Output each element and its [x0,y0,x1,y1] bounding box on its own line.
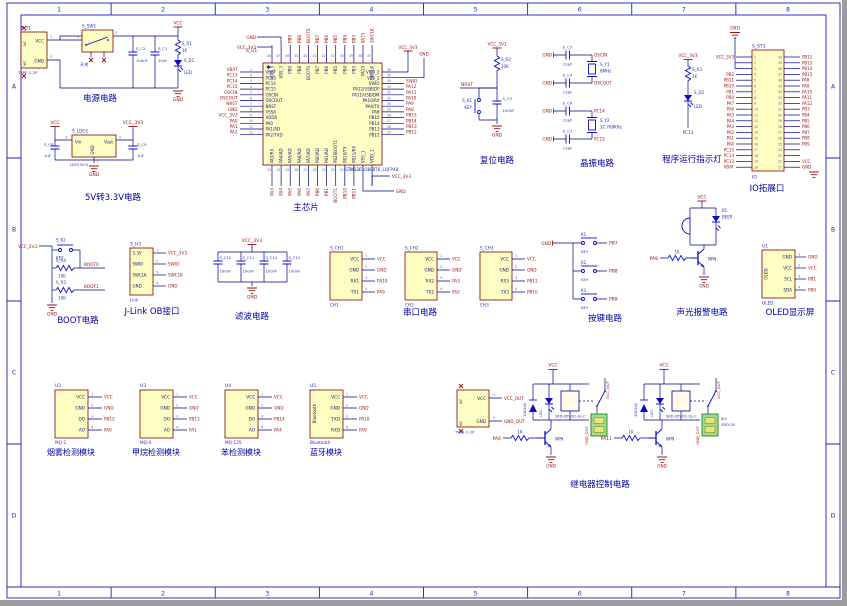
net-label: VCC [189,395,198,400]
pin-name: PB1/AD [324,148,329,163]
net-label: PB11 [724,78,735,83]
pin-name: NC [459,420,463,426]
pin-number: 40 [778,55,782,59]
pin-number: 34 [387,79,391,83]
net-label: GND [546,464,556,469]
pin-number: 29 [778,119,782,123]
pin-number: 13 [754,125,758,129]
zone-number-bottom: 8 [786,591,790,598]
pin-name: VCC [76,395,85,400]
pin-name: GND [330,406,340,411]
pin-number: 46 [285,54,289,58]
pin-number: 1 [176,393,178,397]
pin-number: 36 [778,79,782,83]
net-label: VCC [697,195,706,201]
net-label: VCC_3V3 [237,45,256,50]
zone-number-top: 6 [578,7,582,14]
pin-number: 1 [365,254,367,258]
net-label: GND [377,268,387,273]
net-label: OSCIN [224,90,237,95]
pin-name: PC15 [266,87,277,92]
net-label: PA4 [727,118,735,123]
designator: S_C5 [503,96,513,101]
pin-name: GND [349,268,359,273]
value: 8MHz [600,69,611,74]
circuit-caption: 电源电路 [83,93,118,104]
pin-number: 3 [515,276,517,280]
pin-number: 33 [387,85,391,89]
pin-name: PB11/RX [351,146,356,163]
net-label: PA10 [802,89,812,94]
label: NPN [708,257,716,262]
pin-name: Vout [104,140,113,145]
net-label: PA15 [361,32,366,43]
circuit-caption: BOOT电路 [57,315,99,326]
part-name: SRD-05VDC-SL-C [666,415,697,419]
designator: S_C4 [563,73,573,78]
net-label: PA3 [727,124,735,129]
pin-number: 34 [778,90,782,94]
net-label: SWIO [168,262,180,267]
net-label: GND_OUT [584,426,589,445]
pin-number: 14 [276,168,280,172]
pin-name: PA3/RX [270,148,275,163]
part-name: SRD-05 [721,422,736,427]
zone-letter-right: D [831,513,836,520]
part-name: MQ-4 [140,440,152,445]
switch-label: 开关 [80,61,88,68]
pin-name: GND [90,145,95,154]
pin-number: 7 [250,102,252,106]
net-label: SWIO [406,78,418,83]
pin-number: 27 [387,119,391,123]
net-label: VCC [548,363,557,369]
circuit-caption: 晶振电路 [580,158,615,169]
net-label: GND [657,464,667,469]
pin-name: PA1/AD [266,127,281,132]
pin-number: 29 [387,108,391,112]
circuit-caption: 5V转3.3V电路 [85,192,142,203]
pin-name: TXD [330,417,340,422]
zone-number-top: 5 [474,7,478,14]
net-label: PA11 [601,436,612,442]
pin-number: 10 [754,108,758,112]
pin-number: 27 [778,131,782,135]
pin-number: 4 [754,73,756,77]
pin-number: 1 [50,35,52,39]
value: 100nF [266,269,278,274]
pin-name: PB3 [351,66,356,74]
net-label: PB10 [342,188,347,199]
value: 12pF [563,62,572,67]
schematic-sheet: 1 1 2 2 3 3 4 4 5 5 6 6 7 7 8 [0,0,847,606]
net-label: PA10 [377,279,388,284]
pin-number: 2 [77,35,79,39]
net-label: VCC_3V3 [488,42,507,47]
part-name: OLED [762,301,774,306]
pin-name: TX1 [350,290,359,295]
zone-letter-left: C [12,370,16,377]
designator: K1 [581,232,587,237]
net-label: PB1 [808,277,816,282]
value: 12pF [563,90,572,95]
zone-number-top: 1 [57,7,61,14]
designator: S_C9 [137,142,147,147]
part-name: Link [130,298,139,303]
pin-name: PB8 [297,66,302,74]
value: 100nF [503,108,515,113]
designator: S_H1 [130,242,141,248]
pin-name: PB12 [369,132,380,137]
net-label: PB11 [527,279,538,284]
pin-number: 21 [340,168,344,172]
module-vertical-label: Bluetooth [312,403,317,423]
value: 1uF [137,153,144,158]
net-label: SWCLK [168,273,183,278]
zone-letter-left: B [12,227,16,234]
pin-name: NC [459,398,463,404]
net-label: GND [419,52,429,57]
designator: U2 [55,383,61,389]
net-label: PC15 [227,84,238,89]
net-label: GND_OUT [504,419,525,424]
net-label: PB13 [802,60,813,65]
net-label: GND [247,295,258,301]
net-label: VCC [377,257,386,262]
net-label: PA3 [452,279,460,284]
net-label: PB9 [802,142,810,147]
net-label: PA0 [727,142,735,147]
pin-name: PA7/AD [306,148,311,163]
part-name: Bluetooth [310,440,331,445]
pin-name: PA6/AD [297,148,302,163]
net-label: GND [542,53,552,58]
pin-name: PB2/BOOT1 [333,140,338,163]
pin-number: 8 [754,96,756,100]
pin-number: 18 [754,154,758,158]
net-label: PB12 [406,130,417,135]
pin-name: VCC [246,395,255,400]
pin-number: 17 [303,168,307,172]
net-label: PA11 [802,95,812,100]
pin-number: 31 [778,108,782,112]
pin-number: 3 [365,276,367,280]
pin-number: 37 [778,73,782,77]
part-name: TYPE-C-2P [454,430,475,435]
circuit-caption: 按键电路 [588,313,623,324]
net-label: VCC [802,159,811,164]
designator: S_R2 [501,57,511,62]
pin-name: PB15 [369,115,380,120]
pin-name: SWIO [369,81,380,86]
net-label: VCC [808,266,817,271]
net-label: PA6 [493,436,502,442]
circuit-caption: 复位电路 [480,155,515,166]
pin-number: 11 [249,125,253,129]
pin-number: 40 [340,54,344,58]
pin-number: 21 [778,166,782,170]
pin-number: 47 [276,54,280,58]
pin-number: 1 [250,68,252,72]
net-label: VCC [50,120,59,126]
relay-coil [561,391,579,411]
zone-number-bottom: 2 [161,591,165,598]
net-label: PB7 [802,130,810,135]
net-label: PB0 [726,95,734,100]
designator: U4 [225,383,231,389]
net-label: PB12 [802,55,813,60]
pin-number: 1 [156,249,158,253]
pin-number: 22 [349,168,353,172]
pin-name: GND [424,268,434,273]
net-label: PA10 [406,96,417,101]
value: 100nF [289,269,301,274]
pin-number: 16 [754,142,758,146]
pin-name: GND [476,419,486,424]
net-label: PA5 [288,188,293,196]
pin-number: 32 [387,91,391,95]
pin-number: 32 [778,102,782,106]
pin-number: 3 [261,415,263,419]
pin-name: GND [34,59,44,64]
label: NPN [555,437,563,442]
pin-name: OSCIN [266,92,279,97]
net-label: PC14 [724,153,735,158]
pin-number: 5 [754,79,756,83]
pin-name: 3.3V [133,251,142,256]
pin-name: RX2 [426,279,435,284]
net-label: PA6 [727,107,735,112]
pin-number: 12 [249,131,253,135]
value: 10uF [158,58,167,63]
circuit-caption: OLED显示屏 [766,308,815,318]
pin-name: VCC [331,395,340,400]
pin-name: GND [499,268,509,273]
pin-name: PB4 [342,66,347,74]
pin-number: 1 [96,159,98,163]
net-label: PA2 [230,130,238,135]
net-label: PB3 [802,107,810,112]
pin-number: 17 [754,148,758,152]
pin-name: TX3 [500,290,509,295]
net-label: PB8 [609,269,618,275]
pin-number: 38 [778,67,782,71]
pin-number: 9 [250,113,252,117]
circuit-caption: 蓝牙模块 [310,447,342,457]
pin-number: 23 [358,168,362,172]
net-label: VCC_3V3 [242,238,263,244]
net-label: PA2 [727,130,735,135]
pin-name: VCC [500,257,509,262]
pin-number: 2 [50,55,52,59]
designator: K2 [581,260,587,265]
net-label: VCC_3V3 [18,244,37,249]
net-label: GND [359,406,369,411]
pin-name: PA9/TX [366,104,380,109]
pin-number: 25 [778,142,782,146]
zone-number-bottom: 4 [369,591,373,598]
net-label: VCC_OUT [716,380,721,399]
net-label: VCC_OUT [504,396,524,401]
value: LED [694,104,702,109]
net-label: PB6 [802,124,810,129]
net-label: PB1 [726,89,734,94]
pin-number: 2 [754,61,756,65]
net-label: VBAT [724,165,735,170]
pin-number: 7 [754,90,756,94]
pin-name: SWIO [133,262,144,267]
pin-name: GND [75,406,85,411]
pin-name: RX1 [351,279,360,284]
relay-coil [672,391,690,411]
pin-number: 48 [267,54,271,58]
designator: S_R4 [56,258,66,263]
pin-name: PA10/RX [363,98,380,103]
pin-number: 12 [754,119,758,123]
zone-number-top: 3 [265,7,269,14]
pin-number: 10 [249,119,253,123]
pin-number: 3 [65,136,67,140]
value: 100uF [136,58,148,63]
circuit-caption: 甲烷检测模块 [132,447,180,457]
net-label: GND [89,172,100,178]
net-label: BOOT1 [333,188,338,203]
net-label: PC15 [594,137,605,142]
pin-number: 20 [331,168,335,172]
value: KEY [581,249,589,254]
zone-number-top: 8 [786,7,790,14]
net-label: PA10 [359,417,370,422]
net-label: PB7 [315,35,320,43]
net-label: PA0 [230,118,238,123]
pin-name: PA15 [361,66,366,76]
net-label: PB9 [288,35,293,43]
pin-number: 31 [387,96,391,100]
net-label: PB0 [315,188,320,196]
circuit-caption: IO拓展口 [750,183,785,194]
zone-number-bottom: 5 [474,591,478,598]
designator: U1 [762,244,768,250]
circuit-caption: 声光报警电路 [676,307,728,318]
net-label: GND [699,284,709,289]
designator: S_SW1 [82,24,97,29]
pin-name: GND [782,255,792,260]
net-label: PA8 [406,107,414,112]
value: 10K [58,296,66,301]
pin-name: PC14 [266,81,277,86]
circuit-caption: 烟雾检测模块 [47,447,95,457]
pin-number: 3 [440,276,442,280]
pin-number: 24 [367,168,371,172]
pin-name: VCC [161,395,170,400]
net-label: PB13 [189,417,200,422]
pin-name: VDD_3 [270,66,275,80]
part-name: CH3 [480,303,489,308]
pin-number: 28 [387,113,391,117]
designator: S_C3 [563,45,573,50]
pin-name: GND [133,284,142,289]
pin-name: TX2 [425,290,434,295]
value: KEY [464,105,472,110]
pin-name: SCL [784,277,793,282]
designator: S_R5 [56,280,66,285]
net-label: GND [730,26,740,31]
net-label: VCC_3V3 [392,174,411,179]
pin-number: 39 [349,54,353,58]
pin-number: 18 [312,168,316,172]
net-label: PC14 [227,78,238,83]
pin-number: 3 [176,415,178,419]
zone-number-top: 4 [369,7,373,14]
net-label: NRST [461,82,473,88]
value: 12pF [563,146,572,151]
net-label: GND [274,406,284,411]
net-label: PA11 [406,90,417,95]
net-label: PB5 [802,118,810,123]
pin-number: 43 [312,54,316,58]
pin-number: 41 [331,54,335,58]
net-label: PA1 [230,124,238,129]
net-label: NRST [226,101,238,106]
pin-number: 30 [778,113,782,117]
designator: K3 [581,288,587,293]
pin-number: 39 [778,61,782,65]
value: KEY [581,277,589,282]
pin-number: 11 [754,113,758,117]
label: NPN [666,437,674,442]
net-label: GND [527,268,537,273]
circuit-caption: 滤波电路 [235,311,270,322]
net-label: PC13 [683,130,694,135]
pin-name: VCC [477,396,486,401]
net-label: PA9 [406,101,414,106]
pin-name: SWCLK [133,273,148,278]
circuit-caption: 苯检测模块 [221,447,261,457]
net-label: PB4 [802,113,810,118]
pin-number: 42 [322,54,326,58]
pin-number: 3 [250,79,252,83]
window-edge-bottom [0,600,847,606]
zone-number-bottom: 6 [578,591,582,598]
part-name: MQ-135 [225,440,242,445]
part-name: TYPE-C-2P [17,70,38,75]
net-label: GND [168,284,178,289]
net-label: VCC [359,395,368,400]
pin-number: 28 [778,125,782,129]
pin-name: GND [160,406,170,411]
pin-name: OSCOUT [266,98,284,103]
pin-name: RXD [331,428,340,433]
value: 12pF [563,118,572,123]
pin-name: VSS_3 [279,66,284,79]
value: 1K [692,74,698,79]
pin-name: VSSA [266,110,277,115]
part-name: LDO(3V3) [70,162,89,167]
zone-letter-right: C [831,370,835,377]
net-label: PA4 [274,428,282,433]
designator: S_C10 [220,255,232,260]
pin-number: 4 [250,85,252,89]
net-label: PB5 [333,35,338,43]
pin-number: 3 [346,415,348,419]
pin-number: 6 [754,84,756,88]
part-name: IO [752,175,757,181]
pin-number: 36 [387,68,391,72]
net-label: PA12 [406,84,417,89]
net-label: VCC_3V3 [168,251,187,256]
pin-number: 37 [367,54,371,58]
pin-name: NC [23,60,27,66]
